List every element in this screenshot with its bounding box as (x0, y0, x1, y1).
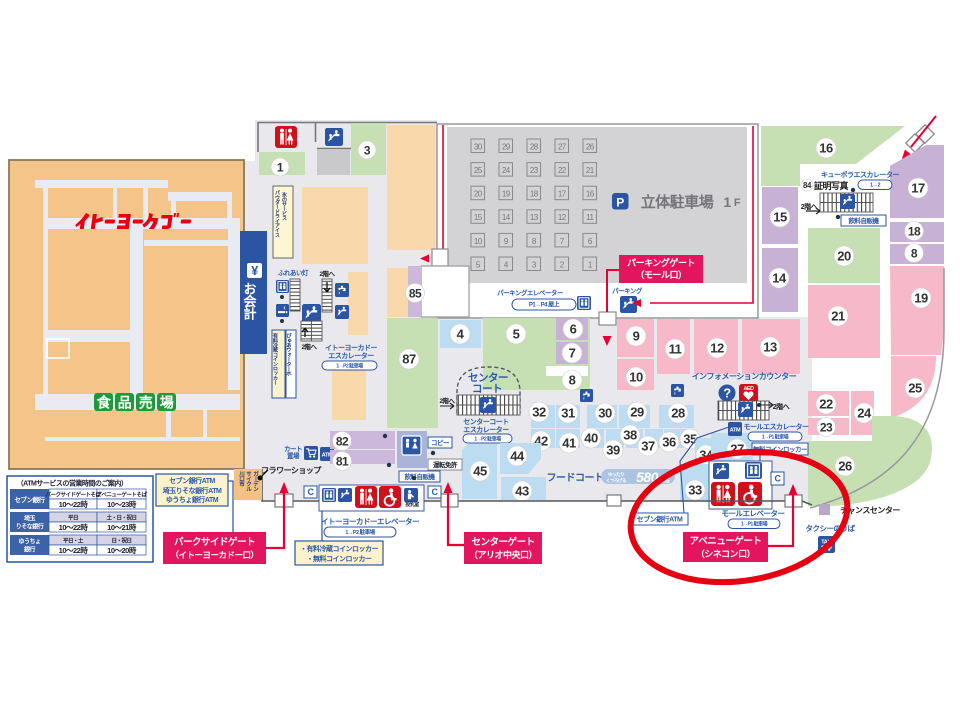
svg-text:・無料コインロッカー: ・無料コインロッカー (307, 554, 372, 563)
svg-text:10～22時: 10～22時 (59, 545, 89, 555)
svg-text:パーキングゲート: パーキングゲート (627, 257, 695, 268)
svg-text:1→P2 駐車場: 1→P2 駐車場 (336, 362, 363, 369)
svg-text:29: 29 (502, 142, 511, 151)
svg-text:埼玉りそな銀行ATM: 埼玉りそな銀行ATM (163, 486, 222, 495)
svg-text:（モール口）: （モール口） (635, 270, 686, 280)
svg-text:セブン銀行ATM: セブン銀行ATM (169, 476, 215, 485)
svg-text:31: 31 (561, 406, 575, 421)
svg-text:33: 33 (688, 483, 702, 498)
svg-text:エスカレーター: エスカレーター (328, 351, 374, 360)
svg-text:17: 17 (558, 190, 567, 199)
svg-text:C: C (775, 474, 782, 484)
svg-text:品: 品 (118, 395, 132, 411)
svg-text:10～21時: 10～21時 (107, 522, 137, 532)
svg-text:18: 18 (530, 190, 539, 199)
svg-text:ガーデン: ガーデン (252, 470, 259, 492)
svg-text:7: 7 (569, 346, 576, 361)
svg-text:エスカレーター: エスカレーター (463, 425, 509, 434)
svg-text:23: 23 (530, 166, 539, 175)
svg-text:27: 27 (558, 142, 567, 151)
svg-text:くつろげる: くつろげる (606, 477, 626, 484)
svg-text:コピー: コピー (431, 438, 449, 447)
svg-text:土・日・祝日: 土・日・祝日 (106, 514, 136, 522)
svg-text:2階へ: 2階へ (801, 202, 818, 211)
svg-text:30: 30 (598, 406, 612, 421)
svg-text:11: 11 (669, 342, 682, 357)
svg-text:1→P1 駐車場: 1→P1 駐車場 (762, 433, 789, 440)
svg-text:14: 14 (502, 213, 511, 222)
svg-text:サイクル: サイクル (245, 471, 252, 492)
svg-text:置場: 置場 (287, 451, 300, 460)
svg-text:カート: カート (284, 445, 302, 453)
svg-text:26: 26 (838, 459, 852, 474)
svg-text:39: 39 (606, 443, 620, 458)
svg-text:立体駐車場: 立体駐車場 (641, 193, 714, 211)
svg-text:平日: 平日 (68, 515, 78, 522)
svg-text:（ATMサービスの営業時間のご案内）: （ATMサービスの営業時間のご案内） (17, 479, 128, 488)
svg-text:2階へ: 2階へ (439, 396, 455, 405)
svg-text:りそな銀行: りそな銀行 (16, 523, 44, 531)
svg-text:埼玉: 埼玉 (24, 515, 36, 523)
svg-text:37: 37 (641, 439, 655, 454)
svg-text:キューポラエスカレーター: キューポラエスカレーター (821, 170, 899, 179)
svg-text:5: 5 (513, 327, 520, 342)
svg-text:コート: コート (472, 383, 502, 395)
svg-text:19: 19 (502, 190, 511, 199)
svg-text:23: 23 (820, 420, 833, 434)
svg-text:1: 1 (277, 160, 284, 174)
svg-text:15: 15 (474, 213, 483, 222)
svg-text:フラワーショップ: フラワーショップ (261, 465, 322, 475)
svg-text:パークサイドゲートそば: パークサイドゲートそば (45, 491, 101, 499)
svg-text:43: 43 (515, 484, 529, 499)
svg-text:6: 6 (570, 322, 577, 337)
svg-text:ゆったり: ゆったり (608, 471, 624, 478)
svg-text:22: 22 (558, 166, 567, 175)
svg-text:モールエレベーター: モールエレベーター (722, 508, 785, 518)
svg-text:16: 16 (819, 141, 833, 156)
svg-text:22: 22 (819, 397, 833, 412)
svg-text:パーキングエレベーター: パーキングエレベーター (497, 288, 563, 297)
svg-text:場: 場 (160, 395, 174, 411)
svg-text:氷のサービス: 氷のサービス (281, 191, 287, 221)
svg-text:16: 16 (586, 190, 595, 199)
svg-text:10～22時: 10～22時 (59, 522, 89, 532)
svg-text:11: 11 (586, 213, 594, 222)
svg-text:29: 29 (630, 405, 644, 420)
svg-text:14: 14 (772, 271, 787, 286)
svg-text:ATM: ATM (730, 428, 741, 434)
svg-text:証明写真: 証明写真 (814, 180, 849, 191)
svg-text:12: 12 (558, 213, 567, 222)
svg-text:82: 82 (336, 434, 349, 448)
svg-text:パーキング: パーキング (612, 286, 643, 295)
svg-text:P1→P4 屋上: P1→P4 屋上 (529, 301, 560, 309)
svg-text:日・祝日: 日・祝日 (111, 537, 131, 545)
svg-text:35: 35 (683, 432, 697, 447)
svg-text:25: 25 (474, 166, 483, 175)
svg-text:8: 8 (569, 373, 576, 388)
svg-text:飲料自販機: 飲料自販機 (848, 216, 880, 225)
svg-text:センターゲート: センターゲート (471, 536, 534, 548)
svg-text:パークサイドゲート: パークサイドゲート (174, 536, 255, 548)
svg-text:10～20時: 10～20時 (107, 545, 137, 555)
svg-text:モールエスカレーター: モールエスカレーター (744, 422, 809, 431)
svg-text:食: 食 (97, 395, 112, 411)
svg-text:12: 12 (710, 341, 724, 356)
svg-text:81: 81 (336, 454, 349, 468)
svg-text:アベニューゲート: アベニューゲート (690, 535, 762, 547)
svg-text:3: 3 (364, 143, 371, 157)
svg-text:ふれあい灯: ふれあい灯 (278, 268, 309, 277)
svg-text:24: 24 (857, 406, 872, 421)
svg-text:1→P2 駐車場: 1→P2 駐車場 (474, 435, 501, 442)
svg-text:41: 41 (562, 436, 576, 451)
svg-text:?: ? (723, 386, 731, 401)
svg-text:8: 8 (911, 246, 918, 260)
svg-text:30: 30 (474, 142, 483, 151)
svg-text:P: P (616, 196, 624, 210)
svg-text:10～23時: 10～23時 (107, 499, 137, 509)
svg-text:20: 20 (837, 249, 851, 264)
svg-text:平日・土: 平日・土 (63, 537, 84, 545)
svg-text:授乳室: 授乳室 (404, 501, 419, 508)
svg-text:28: 28 (671, 406, 685, 421)
svg-text:28: 28 (530, 142, 539, 151)
svg-text:10: 10 (474, 237, 483, 246)
svg-text:イトーヨーカドーエレベーター: イトーヨーカドーエレベーター (321, 516, 419, 526)
svg-text:パウダードライアイス: パウダードライアイス (274, 189, 280, 238)
svg-text:お会計: お会計 (242, 282, 257, 321)
svg-text:85: 85 (409, 286, 422, 300)
svg-text:13: 13 (530, 213, 539, 222)
svg-text:40: 40 (584, 431, 598, 446)
svg-text:2階へ: 2階へ (773, 402, 790, 411)
svg-text:タクシーのりば: タクシーのりば (806, 523, 856, 533)
svg-text:（アリオ中央口）: （アリオ中央口） (469, 549, 537, 560)
svg-text:21: 21 (586, 166, 595, 175)
svg-text:AED: AED (743, 386, 754, 392)
svg-text:18: 18 (908, 224, 921, 238)
svg-text:1→P1 駐車場: 1→P1 駐車場 (741, 521, 768, 528)
svg-text:（イトーヨーカドー口）: （イトーヨーカドー口） (170, 550, 258, 560)
svg-text:15: 15 (773, 210, 787, 225)
svg-text:26: 26 (586, 142, 595, 151)
svg-text:銀行: 銀行 (24, 546, 36, 554)
svg-text:セブン銀行ATM: セブン銀行ATM (637, 515, 683, 524)
svg-text:2階へ: 2階へ (301, 342, 317, 351)
svg-text:（シネコン口）: （シネコン口） (696, 549, 755, 559)
svg-text:9: 9 (633, 329, 640, 344)
svg-text:C: C (308, 487, 315, 497)
svg-text:32: 32 (532, 405, 546, 420)
svg-text:1→P2 駐車場: 1→P2 駐車場 (345, 528, 375, 536)
svg-text:36: 36 (662, 435, 676, 450)
svg-text:アベニューゲートそば: アベニューゲートそば (97, 491, 148, 499)
svg-text:フードコート: フードコート (547, 472, 604, 484)
svg-text:10: 10 (629, 370, 643, 385)
svg-text:24: 24 (502, 166, 511, 175)
svg-text:F: F (734, 197, 741, 209)
svg-text:ゆうちょ銀行ATM: ゆうちょ銀行ATM (166, 495, 219, 504)
svg-text:運転免許: 運転免許 (433, 460, 458, 469)
svg-text:・有料冷蔵コインロッカー: ・有料冷蔵コインロッカー (300, 544, 378, 553)
svg-text:1: 1 (723, 194, 731, 210)
svg-text:売: 売 (139, 395, 153, 411)
svg-text:ゆうちょ: ゆうちょ (18, 538, 40, 546)
svg-text:センターコート: センターコート (463, 417, 509, 426)
svg-text:45: 45 (473, 464, 487, 479)
svg-text:38: 38 (623, 428, 637, 443)
svg-text:84: 84 (803, 181, 812, 190)
svg-text:ぴゅあウォーター水: ぴゅあウォーター水 (285, 332, 291, 378)
svg-text:21: 21 (831, 309, 845, 324)
svg-text:有料冷蔵コインロッカー: 有料冷蔵コインロッカー (272, 332, 278, 386)
svg-text:2階へ: 2階へ (319, 269, 335, 278)
svg-text:87: 87 (402, 352, 416, 367)
svg-text:25: 25 (908, 381, 922, 396)
svg-text:17: 17 (911, 181, 925, 196)
svg-text:インフォメーションカウンター: インフォメーションカウンター (692, 371, 797, 381)
svg-text:44: 44 (510, 449, 525, 464)
svg-text:イトーヨーカドー: イトーヨーカドー (325, 344, 377, 352)
svg-text:セブン銀行: セブン銀行 (15, 495, 46, 504)
svg-text:1→2: 1→2 (870, 183, 881, 189)
svg-text:C: C (432, 487, 439, 497)
svg-text:10～22時: 10～22時 (59, 499, 89, 509)
svg-text:飲料自販機: 飲料自販機 (404, 472, 436, 481)
svg-text:20: 20 (474, 190, 483, 199)
svg-text:19: 19 (914, 291, 928, 306)
svg-text:13: 13 (763, 340, 777, 355)
svg-text:¥: ¥ (251, 264, 258, 278)
